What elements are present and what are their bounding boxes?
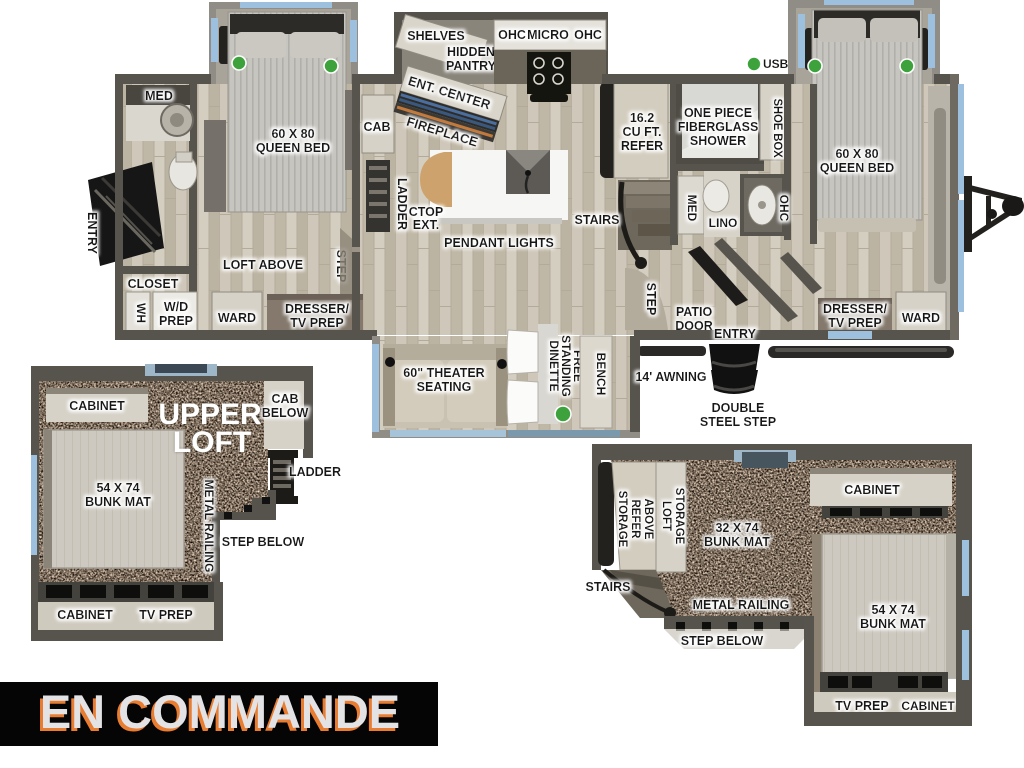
svg-text:STANDING: STANDING [559,335,573,397]
svg-text:PANTRY: PANTRY [446,59,497,73]
svg-text:TV PREP: TV PREP [828,316,882,330]
svg-text:STEP: STEP [644,283,658,316]
svg-text:OHC: OHC [498,28,526,42]
svg-text:CLOSET: CLOSET [128,277,179,291]
svg-text:METAL RAILING: METAL RAILING [202,480,216,573]
svg-text:16.2: 16.2 [630,111,654,125]
svg-text:ONE PIECE: ONE PIECE [684,106,752,120]
svg-text:CAB: CAB [271,392,298,406]
svg-text:OHC: OHC [777,195,791,222]
svg-text:LOFT ABOVE: LOFT ABOVE [223,258,303,272]
svg-text:LINO: LINO [709,216,738,230]
svg-text:STEP BELOW: STEP BELOW [222,535,305,549]
svg-text:STEEL STEP: STEEL STEP [700,415,776,429]
svg-text:SHOE BOX: SHOE BOX [771,98,783,158]
svg-text:QUEEN BED: QUEEN BED [820,161,894,175]
svg-text:STAIRS: STAIRS [586,580,631,594]
svg-text:SHOWER: SHOWER [690,134,746,148]
svg-text:MED: MED [145,89,173,103]
svg-text:USB: USB [763,57,789,71]
svg-text:14' AWNING: 14' AWNING [635,370,706,384]
svg-text:CAB: CAB [363,120,390,134]
svg-text:60 X 80: 60 X 80 [271,127,314,141]
svg-text:TV PREP: TV PREP [835,699,889,713]
svg-text:TV PREP: TV PREP [139,608,193,622]
svg-text:LOFT: LOFT [173,426,251,459]
svg-text:CABINET: CABINET [901,699,955,713]
svg-text:DRESSER/: DRESSER/ [285,302,349,316]
svg-text:DRESSER/: DRESSER/ [823,302,887,316]
svg-text:QUEEN BED: QUEEN BED [256,141,330,155]
svg-text:ENTRY: ENTRY [85,212,99,255]
svg-text:60 X 80: 60 X 80 [835,147,878,161]
svg-text:STEP BELOW: STEP BELOW [681,634,764,648]
svg-text:W/D: W/D [164,300,188,314]
svg-text:32 X 74: 32 X 74 [715,521,758,535]
svg-text:LADDER: LADDER [395,178,409,230]
svg-text:BUNK MAT: BUNK MAT [85,495,151,509]
svg-text:REFER: REFER [629,500,641,540]
svg-text:PENDANT LIGHTS: PENDANT LIGHTS [444,236,554,250]
svg-text:60" THEATER: 60" THEATER [403,366,484,380]
svg-text:TV PREP: TV PREP [290,316,344,330]
svg-text:CTOP: CTOP [409,205,444,219]
svg-text:REFER: REFER [621,139,663,153]
svg-text:EXT.: EXT. [413,218,439,232]
svg-text:DOUBLE: DOUBLE [712,401,765,415]
svg-text:SEATING: SEATING [417,380,472,394]
svg-text:STORAGE: STORAGE [673,488,685,545]
svg-text:ENTRY: ENTRY [714,327,757,341]
svg-text:PREP: PREP [159,314,193,328]
svg-text:BUNK MAT: BUNK MAT [704,535,770,549]
svg-text:HIDDEN: HIDDEN [447,45,495,59]
svg-text:FIBERGLASS: FIBERGLASS [678,120,759,134]
svg-text:BELOW: BELOW [262,406,309,420]
svg-text:MED: MED [685,195,699,222]
svg-text:WH: WH [134,303,148,323]
svg-text:CU FT.: CU FT. [623,125,662,139]
svg-text:METAL RAILING: METAL RAILING [693,598,790,612]
svg-text:SHELVES: SHELVES [407,29,464,43]
svg-text:ABOVE: ABOVE [642,499,654,540]
svg-text:CABINET: CABINET [844,483,900,497]
svg-text:DINETTE: DINETTE [547,340,561,391]
svg-text:CABINET: CABINET [69,399,125,413]
svg-text:BENCH: BENCH [594,353,608,396]
svg-text:PATIO: PATIO [676,305,713,319]
svg-text:WARD: WARD [902,311,940,325]
svg-text:LOFT: LOFT [660,501,672,531]
svg-text:BUNK MAT: BUNK MAT [860,617,926,631]
svg-text:EN COMMANDE: EN COMMANDE [40,685,400,738]
svg-text:MICRO: MICRO [527,28,569,42]
svg-text:WARD: WARD [218,311,256,325]
svg-text:LADDER: LADDER [289,465,341,479]
svg-text:CABINET: CABINET [57,608,113,622]
svg-text:STAIRS: STAIRS [575,213,620,227]
svg-text:STORAGE: STORAGE [616,491,628,548]
svg-text:54 X 74: 54 X 74 [871,603,914,617]
svg-text:54 X 74: 54 X 74 [96,481,139,495]
svg-text:OHC: OHC [574,28,602,42]
